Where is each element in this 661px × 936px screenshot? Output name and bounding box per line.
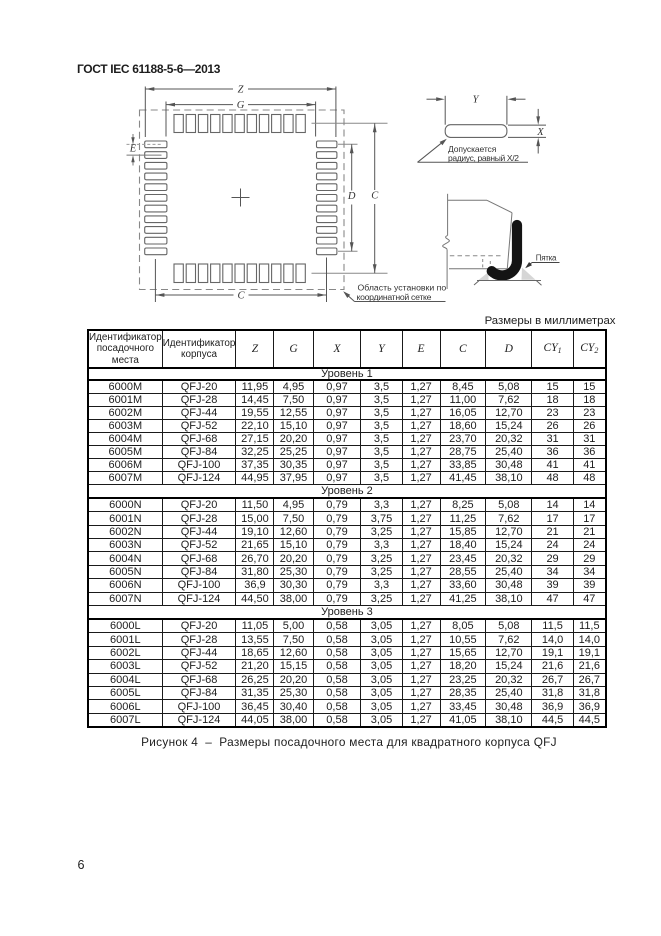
svg-text:Y: Y (473, 95, 480, 106)
svg-text:радиус, равный Х/2: радиус, равный Х/2 (448, 153, 519, 163)
svg-text:Область установки по: Область установки по (358, 282, 447, 292)
svg-text:X: X (536, 127, 544, 138)
svg-text:E: E (129, 144, 137, 155)
svg-text:Пятка: Пятка (536, 254, 557, 263)
svg-text:Z: Z (238, 85, 244, 96)
svg-text:координатной сетке: координатной сетке (357, 292, 432, 302)
svg-text:C: C (371, 191, 379, 202)
svg-text:G: G (237, 100, 245, 111)
svg-text:C: C (237, 291, 245, 302)
svg-text:D: D (347, 191, 356, 202)
